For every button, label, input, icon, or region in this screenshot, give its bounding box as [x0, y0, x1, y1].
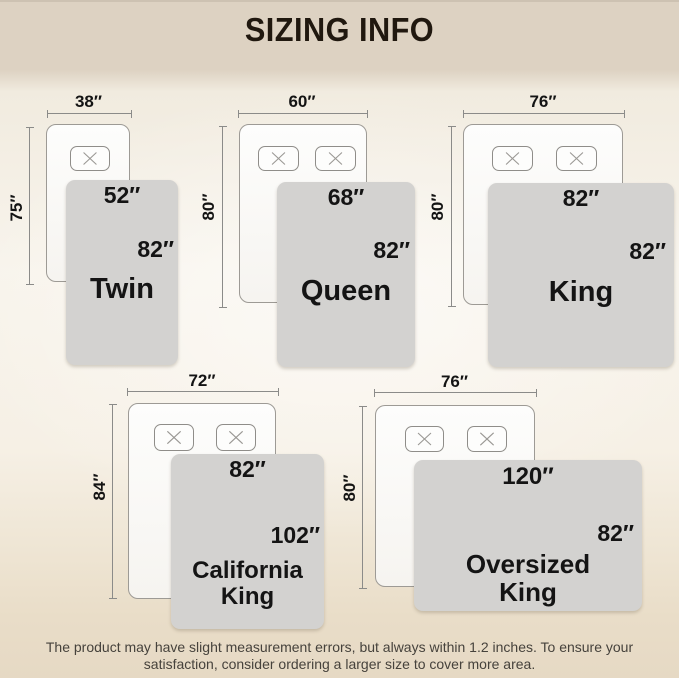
pillow [70, 146, 110, 171]
blanket-overlay: 52″ 82″ Twin [66, 180, 178, 365]
length-dimension-label: 80″ [340, 467, 360, 509]
pillow-x-icon [71, 147, 109, 170]
blanket-width-label: 68″ [277, 184, 415, 211]
pillow [405, 426, 444, 452]
dimension-line [128, 391, 278, 392]
size-name-label: California King [171, 558, 324, 610]
blanket-length-label: 82″ [629, 238, 666, 265]
size-name-label: Twin [66, 274, 178, 305]
length-dimension-line [448, 126, 456, 307]
width-dimension-line [238, 110, 368, 118]
length-dimension-line [359, 406, 367, 589]
dimension-line [451, 127, 452, 306]
disclaimer-line-2: satisfaction, consider ordering a larger… [0, 656, 679, 673]
pillow [154, 424, 194, 451]
blanket-length-label: 82″ [373, 237, 410, 264]
pillow-x-icon [468, 427, 506, 451]
length-dimension-label: 84″ [90, 466, 110, 508]
width-dimension-line [47, 110, 132, 118]
size-name-label: Oversized King [414, 550, 642, 606]
pillow-x-icon [493, 147, 532, 170]
pillow [467, 426, 507, 452]
blanket-overlay: 82″ 82″ King [488, 183, 674, 367]
blanket-width-label: 52″ [66, 182, 178, 209]
dimension-line [239, 113, 367, 114]
size-name-label: Queen [277, 276, 415, 307]
length-dimension-label: 80″ [199, 186, 219, 228]
width-dimension-label: 76″ [463, 93, 623, 110]
width-dimension-line [127, 388, 279, 396]
blanket-overlay: 68″ 82″ Queen [277, 182, 415, 367]
pillow [258, 146, 299, 171]
pillow-x-icon [259, 147, 298, 170]
dimension-line [112, 405, 113, 598]
length-dimension-label: 80″ [428, 186, 448, 228]
blanket-length-label: 82″ [137, 236, 174, 263]
size-name-label: King [488, 277, 674, 308]
disclaimer-line-1: The product may have slight measurement … [0, 639, 679, 656]
pillow [556, 146, 597, 171]
disclaimer-text: The product may have slight measurement … [0, 639, 679, 673]
width-dimension-line [374, 389, 537, 397]
pillow-x-icon [557, 147, 596, 170]
blanket-length-label: 102″ [271, 522, 320, 549]
length-dimension-line [26, 127, 34, 285]
dimension-line [375, 392, 536, 393]
pillow [492, 146, 533, 171]
blanket-length-label: 82″ [597, 520, 634, 547]
width-dimension-label: 76″ [374, 373, 535, 390]
width-dimension-label: 38″ [47, 93, 130, 110]
length-dimension-label: 75″ [7, 187, 27, 229]
pillow-x-icon [406, 427, 443, 451]
blanket-overlay: 120″ 82″ Oversized King [414, 460, 642, 611]
top-border-strip [0, 0, 679, 2]
dimension-line [464, 113, 624, 114]
width-dimension-label: 60″ [238, 93, 366, 110]
blanket-overlay: 82″ 102″ California King [171, 454, 324, 629]
blanket-width-label: 82″ [171, 456, 324, 483]
dimension-line [29, 128, 30, 284]
width-dimension-label: 72″ [127, 372, 277, 389]
length-dimension-line [109, 404, 117, 599]
blanket-width-label: 82″ [488, 185, 674, 212]
sizing-info-infographic: SIZING INFO 38″ 75″ 52″ 82″ Twin 60″ 80″ [0, 0, 679, 678]
page-title: SIZING INFO [24, 13, 655, 46]
dimension-line [362, 407, 363, 588]
blanket-width-label: 120″ [414, 463, 642, 490]
length-dimension-line [219, 126, 227, 308]
pillow [216, 424, 256, 451]
width-dimension-line [463, 110, 625, 118]
dimension-line [48, 113, 131, 114]
dimension-line [222, 127, 223, 307]
pillow-x-icon [217, 425, 255, 450]
pillow [315, 146, 356, 171]
pillow-x-icon [155, 425, 193, 450]
pillow-x-icon [316, 147, 355, 170]
